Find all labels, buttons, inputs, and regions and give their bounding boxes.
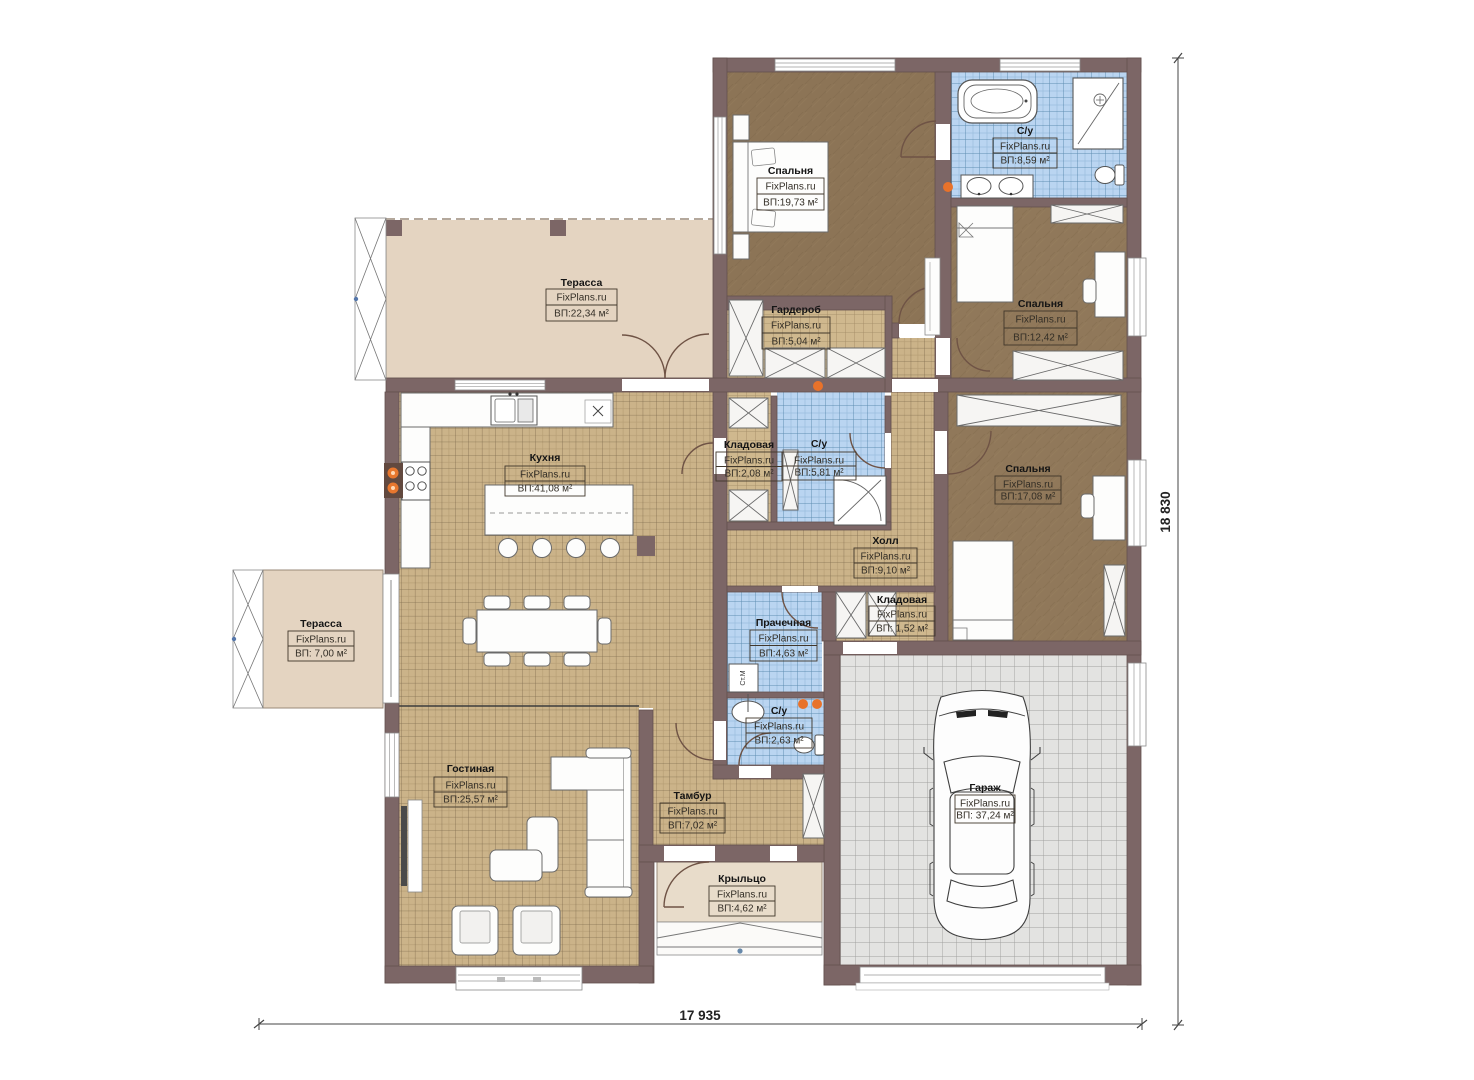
svg-text:FixPlans.ru: FixPlans.ru — [758, 634, 808, 645]
svg-text:Спальня: Спальня — [1018, 298, 1063, 310]
svg-text:ВП:2,63 м²: ВП:2,63 м² — [754, 736, 804, 747]
svg-text:FixPlans.ru: FixPlans.ru — [860, 552, 910, 563]
svg-text:17 935: 17 935 — [679, 1008, 721, 1023]
svg-text:FixPlans.ru: FixPlans.ru — [556, 293, 606, 304]
svg-text:FixPlans.ru: FixPlans.ru — [520, 470, 570, 481]
svg-text:ВП:12,42 м²: ВП:12,42 м² — [1013, 333, 1068, 344]
svg-text:ВП:4,62 м²: ВП:4,62 м² — [717, 904, 767, 915]
svg-text:Кладовая: Кладовая — [877, 594, 927, 606]
svg-text:ВП:5,81 м²: ВП:5,81 м² — [794, 468, 844, 479]
svg-text:Крыльцо: Крыльцо — [718, 873, 766, 885]
svg-text:FixPlans.ru: FixPlans.ru — [794, 456, 844, 467]
svg-text:FixPlans.ru: FixPlans.ru — [296, 635, 346, 646]
svg-text:С/у: С/у — [811, 438, 828, 450]
svg-text:Терасса: Терасса — [300, 618, 342, 630]
svg-text:Тамбур: Тамбур — [673, 790, 711, 802]
svg-text:ВП:22,34 м²: ВП:22,34 м² — [554, 309, 609, 320]
svg-text:FixPlans.ru: FixPlans.ru — [771, 321, 821, 332]
svg-text:ВП: 7,00 м²: ВП: 7,00 м² — [295, 649, 348, 660]
svg-text:ВП:17,08 м²: ВП:17,08 м² — [1001, 492, 1056, 503]
svg-text:FixPlans.ru: FixPlans.ru — [667, 807, 717, 818]
svg-text:FixPlans.ru: FixPlans.ru — [717, 890, 767, 901]
svg-text:18 830: 18 830 — [1158, 491, 1173, 532]
svg-text:Кладовая: Кладовая — [724, 439, 774, 451]
svg-text:ВП: 1,52 м²: ВП: 1,52 м² — [876, 624, 929, 635]
svg-text:ВП:19,73 м²: ВП:19,73 м² — [763, 198, 818, 209]
svg-text:ВП:2,08 м²: ВП:2,08 м² — [724, 469, 774, 480]
svg-text:Кухня: Кухня — [530, 452, 561, 464]
svg-text:ВП:5,04 м²: ВП:5,04 м² — [771, 337, 821, 348]
svg-text:Гараж: Гараж — [969, 782, 1001, 794]
svg-text:FixPlans.ru: FixPlans.ru — [445, 781, 495, 792]
svg-text:С/у: С/у — [1017, 125, 1034, 137]
svg-text:Спальня: Спальня — [1005, 463, 1050, 475]
svg-text:FixPlans.ru: FixPlans.ru — [1000, 142, 1050, 153]
svg-text:FixPlans.ru: FixPlans.ru — [754, 722, 804, 733]
svg-text:ВП:41,08 м²: ВП:41,08 м² — [518, 484, 573, 495]
svg-text:FixPlans.ru: FixPlans.ru — [877, 610, 927, 621]
svg-text:Ст.М: Ст.М — [740, 670, 747, 685]
svg-text:ВП: 37,24 м²: ВП: 37,24 м² — [956, 811, 1014, 822]
svg-text:ВП:9,10 м²: ВП:9,10 м² — [861, 566, 911, 577]
svg-text:ВП:7,02 м²: ВП:7,02 м² — [668, 821, 718, 832]
svg-text:FixPlans.ru: FixPlans.ru — [724, 456, 774, 467]
svg-text:FixPlans.ru: FixPlans.ru — [765, 182, 815, 193]
svg-text:Гардероб: Гардероб — [771, 304, 821, 316]
svg-text:Прачечная: Прачечная — [756, 617, 812, 629]
svg-text:Холл: Холл — [872, 535, 898, 547]
svg-text:Спальня: Спальня — [768, 165, 813, 177]
svg-text:FixPlans.ru: FixPlans.ru — [1015, 315, 1065, 326]
svg-text:Гостиная: Гостиная — [447, 763, 494, 775]
svg-text:ВП:25,57 м²: ВП:25,57 м² — [443, 795, 498, 806]
svg-text:FixPlans.ru: FixPlans.ru — [1003, 480, 1053, 491]
svg-text:ВП:8,59 м²: ВП:8,59 м² — [1000, 156, 1050, 167]
svg-text:Терасса: Терасса — [561, 277, 603, 289]
svg-text:С/у: С/у — [771, 705, 788, 717]
svg-text:FixPlans.ru: FixPlans.ru — [960, 799, 1010, 810]
svg-text:ВП:4,63 м²: ВП:4,63 м² — [759, 649, 809, 660]
